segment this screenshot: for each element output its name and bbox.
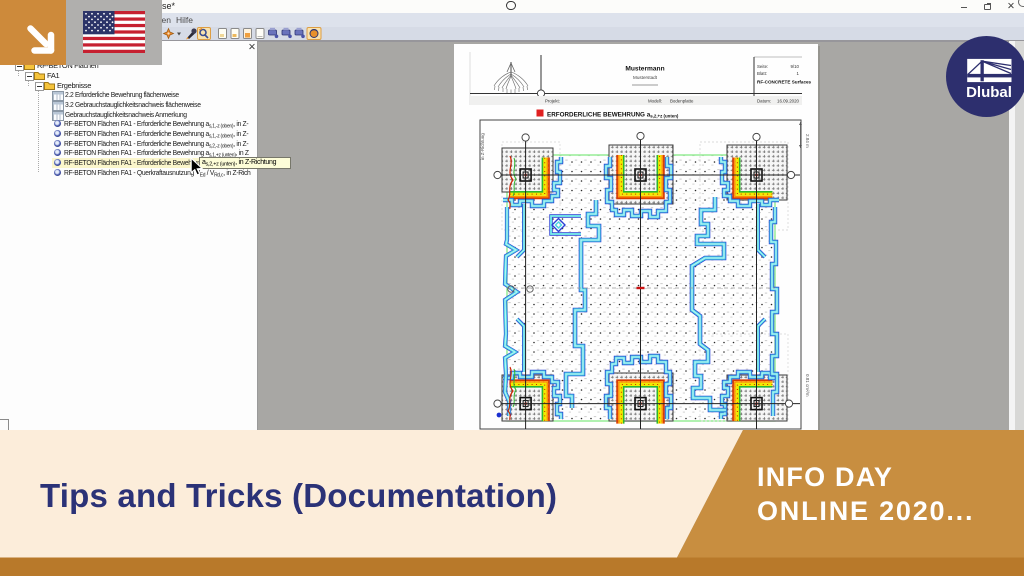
svg-text:Datum:: Datum: (757, 99, 771, 104)
svg-text:16.09.2020: 16.09.2020 (777, 99, 800, 104)
svg-text:Dlubal: Dlubal (966, 84, 1012, 101)
svg-text:Musterstadt: Musterstadt (633, 75, 658, 80)
svg-text:1: 1 (797, 71, 800, 76)
svg-text:Projekt:: Projekt: (545, 99, 560, 104)
svg-text:Bodenplatte: Bodenplatte (670, 99, 694, 104)
svg-text:in Z-Richtung: in Z-Richtung (480, 133, 485, 160)
svg-text:RF-CONCRETE Surfaces: RF-CONCRETE Surfaces (757, 80, 812, 85)
svg-text:ERFORDERLICHE BEWEHRUNG as,2,+: ERFORDERLICHE BEWEHRUNG as,2,+z (unten) (547, 111, 679, 118)
svg-text:9/10: 9/10 (790, 64, 799, 69)
svg-text:Mustermann: Mustermann (625, 66, 664, 73)
svg-text:Blatt:: Blatt: (757, 71, 767, 76)
svg-text:2.84 m: 2.84 m (805, 134, 810, 148)
svg-text:Seite:: Seite: (757, 64, 768, 69)
svg-text:0.81 cm²/m: 0.81 cm²/m (805, 374, 810, 397)
svg-text:Modell:: Modell: (648, 99, 662, 104)
